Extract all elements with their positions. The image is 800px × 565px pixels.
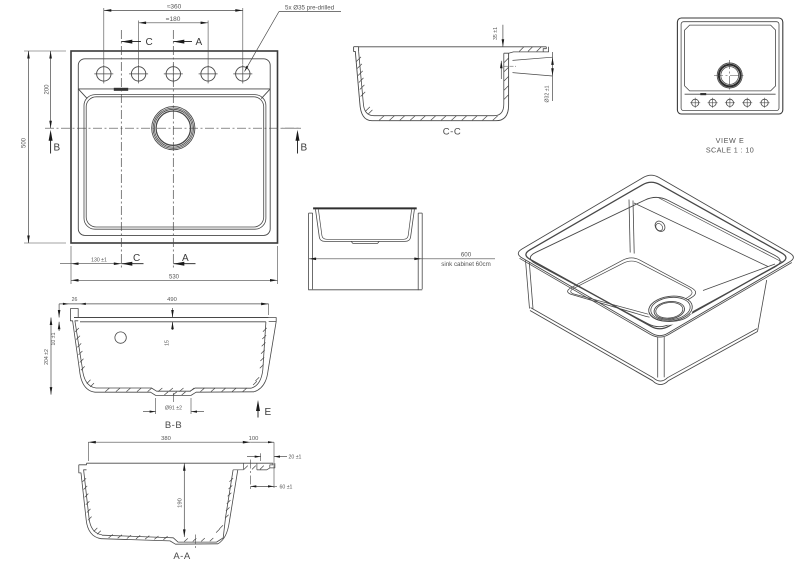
svg-text:500: 500 — [22, 137, 28, 148]
svg-text:100: 100 — [249, 436, 259, 442]
svg-text:5x Ø35 pre-drilled: 5x Ø35 pre-drilled — [285, 5, 335, 12]
svg-text:490: 490 — [167, 297, 177, 303]
svg-text:15: 15 — [165, 340, 171, 346]
svg-text:20 ±1: 20 ±1 — [289, 455, 302, 461]
svg-text:200: 200 — [45, 84, 51, 95]
svg-text:530: 530 — [169, 274, 180, 280]
svg-text:A: A — [196, 37, 203, 48]
svg-text:35 ±1: 35 ±1 — [493, 27, 499, 40]
svg-text:E: E — [265, 407, 272, 418]
svg-text:=180: =180 — [166, 16, 181, 23]
svg-text:380: 380 — [161, 436, 171, 442]
svg-text:A: A — [182, 253, 189, 264]
svg-text:26: 26 — [72, 297, 78, 303]
svg-text:Ø32 ±1: Ø32 ±1 — [545, 85, 551, 102]
svg-text:60 ±1: 60 ±1 — [280, 484, 293, 490]
svg-text:B: B — [301, 143, 308, 154]
svg-text:10 ±1: 10 ±1 — [51, 332, 57, 345]
svg-text:≈360: ≈360 — [167, 4, 182, 11]
svg-text:600: 600 — [461, 251, 472, 258]
svg-text:A-A: A-A — [173, 551, 191, 562]
svg-text:SCALE 1 : 10: SCALE 1 : 10 — [706, 145, 754, 154]
svg-text:VIEW E: VIEW E — [716, 136, 745, 145]
svg-text:sink cabinet 60cm: sink cabinet 60cm — [441, 261, 491, 268]
svg-text:B-B: B-B — [165, 420, 182, 431]
svg-text:C: C — [146, 37, 153, 48]
svg-text:130 ±1: 130 ±1 — [91, 258, 107, 264]
svg-text:C-C: C-C — [443, 127, 461, 138]
svg-text:C: C — [133, 253, 140, 264]
svg-text:B: B — [54, 143, 61, 154]
svg-text:204 ±2: 204 ±2 — [44, 349, 50, 365]
svg-text:190: 190 — [177, 498, 183, 508]
svg-text:Ø91 ±2: Ø91 ±2 — [165, 405, 182, 411]
